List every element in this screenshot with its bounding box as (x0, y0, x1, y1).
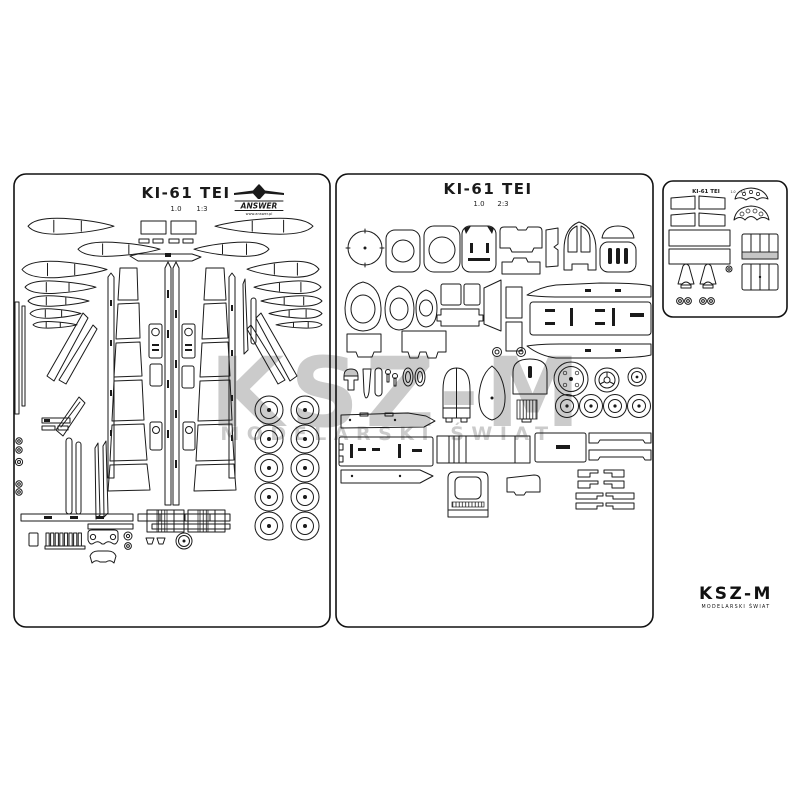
formers-row (346, 222, 636, 274)
sheet-3-parts (669, 188, 778, 304)
publisher-website: www.answer.pl (246, 212, 273, 216)
bottom-parts-group (21, 510, 230, 563)
sheet-1-version: 1.0 (170, 205, 181, 213)
sheet-3-version: 1.0 (730, 190, 735, 194)
wheel (255, 454, 283, 482)
engine-mount-bracket (88, 530, 118, 544)
laser-cut-sheets-scan: KSZ-M MODELARSKI ŚWIAT KI-61 TEI 1.0 1:3… (0, 0, 800, 800)
sheet-1-number: 1:3 (196, 205, 207, 213)
sheet-2-title: KI-61 TEI (443, 180, 532, 198)
wheel (291, 454, 319, 482)
publisher-name: ANSWER (240, 202, 278, 211)
brand-tagline: MODELARSKI ŚWIAT (701, 603, 770, 610)
watermark: KSZ-M MODELARSKI ŚWIAT (210, 337, 587, 449)
small-panels-group (130, 221, 201, 261)
publisher-logo: ANSWER www.answer.pl (234, 184, 284, 216)
sheet-2-version: 1.0 (473, 200, 484, 208)
brand-name: KSZ-M (699, 584, 773, 604)
wheel (255, 512, 283, 540)
pylon (700, 264, 716, 284)
fittings-group (149, 324, 195, 450)
cowl-scallop (734, 206, 769, 220)
airplane-icon (234, 184, 284, 199)
pylon (678, 264, 694, 284)
sheet-3: KI-61 TEI 1.0 3:3 (663, 181, 787, 317)
left-small-parts-group (15, 418, 70, 495)
sheet-2-number: 2:3 (497, 200, 508, 208)
wheel (255, 483, 283, 511)
wheel (291, 483, 319, 511)
brand-logo: KSZ-M MODELARSKI ŚWIAT (699, 584, 773, 610)
comb-strip (45, 533, 85, 549)
clips-row (448, 470, 634, 517)
scan-artwork: KSZ-M MODELARSKI ŚWIAT KI-61 TEI 1.0 1:3… (0, 0, 800, 800)
saddle-bracket (90, 551, 116, 563)
wing-ribs-group (22, 218, 322, 328)
sheet-1-title: KI-61 TEI (141, 184, 230, 202)
sheet-3-title: KI-61 TEI (692, 189, 720, 195)
wheel (291, 512, 319, 540)
canopy-former (564, 222, 596, 270)
